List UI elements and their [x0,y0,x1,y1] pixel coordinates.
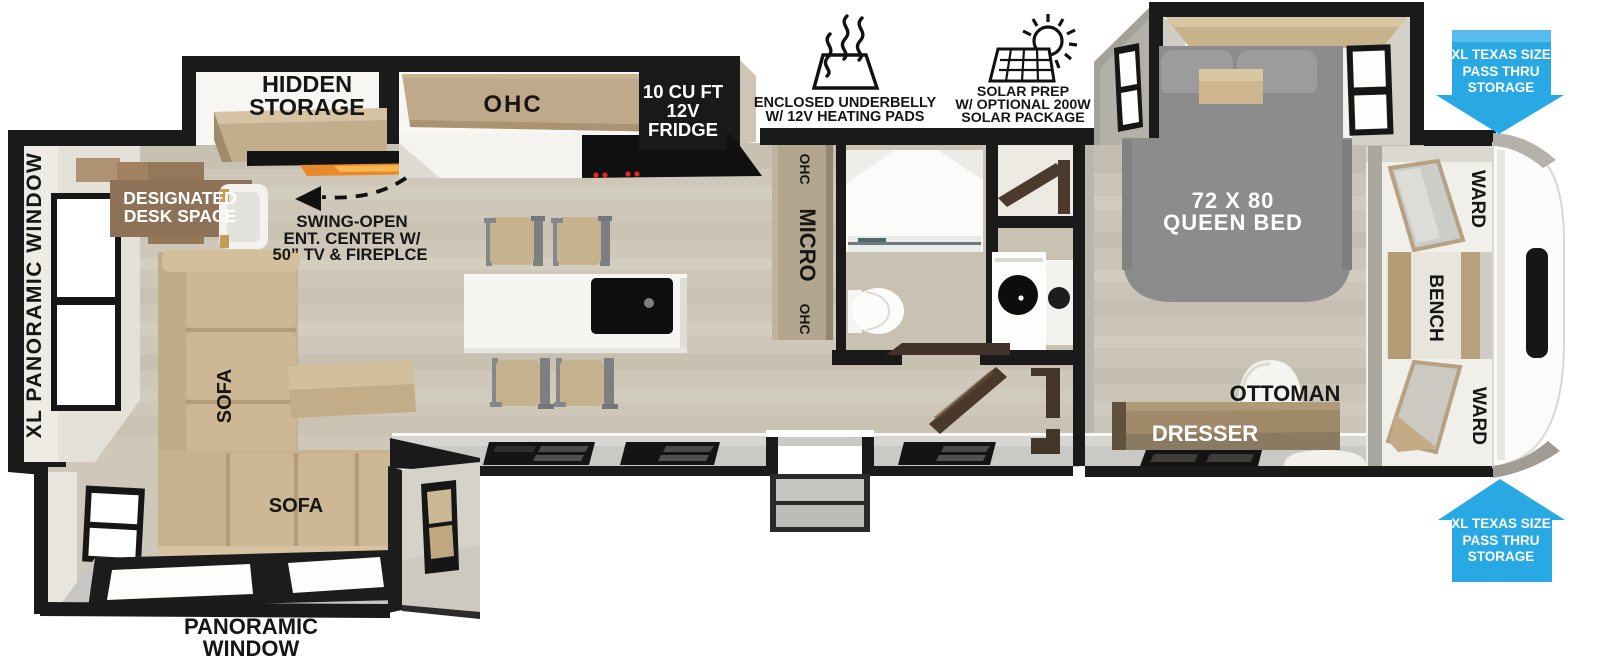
svg-text:OHC: OHC [797,303,813,334]
svg-text:MICRO: MICRO [795,208,820,281]
svg-text:WINDOW: WINDOW [203,636,300,661]
svg-text:OHC: OHC [483,91,542,118]
svg-text:PASS THRU: PASS THRU [1462,533,1539,548]
svg-text:W/ 12V HEATING PADS: W/ 12V HEATING PADS [766,109,925,125]
svg-text:FRIDGE: FRIDGE [648,119,718,140]
svg-text:12V: 12V [667,100,701,121]
svg-text:XL PANORAMIC WINDOW: XL PANORAMIC WINDOW [23,152,46,439]
svg-text:OHC: OHC [797,153,813,184]
svg-text:BENCH: BENCH [1425,274,1446,342]
svg-text:SOLAR PACKAGE: SOLAR PACKAGE [961,110,1085,126]
svg-text:DRESSER: DRESSER [1152,421,1258,446]
svg-text:DESK SPACE: DESK SPACE [124,206,236,226]
svg-text:STORAGE: STORAGE [249,94,365,120]
svg-text:XL TEXAS SIZE: XL TEXAS SIZE [1451,47,1551,62]
svg-text:WARD: WARD [1467,170,1488,228]
svg-text:QUEEN BED: QUEEN BED [1163,210,1303,235]
svg-text:PASS THRU: PASS THRU [1462,64,1539,79]
svg-text:XL TEXAS SIZE: XL TEXAS SIZE [1451,516,1551,531]
svg-text:WARD: WARD [1468,387,1489,445]
svg-text:SOFA: SOFA [214,369,236,423]
svg-text:10 CU FT: 10 CU FT [643,81,724,102]
svg-text:DESIGNATED: DESIGNATED [123,188,236,208]
svg-text:STORAGE: STORAGE [1468,549,1535,564]
svg-text:SOFA: SOFA [269,495,323,517]
svg-text:STORAGE: STORAGE [1468,80,1535,95]
svg-text:50” TV & FIREPLCE: 50” TV & FIREPLCE [273,246,428,264]
